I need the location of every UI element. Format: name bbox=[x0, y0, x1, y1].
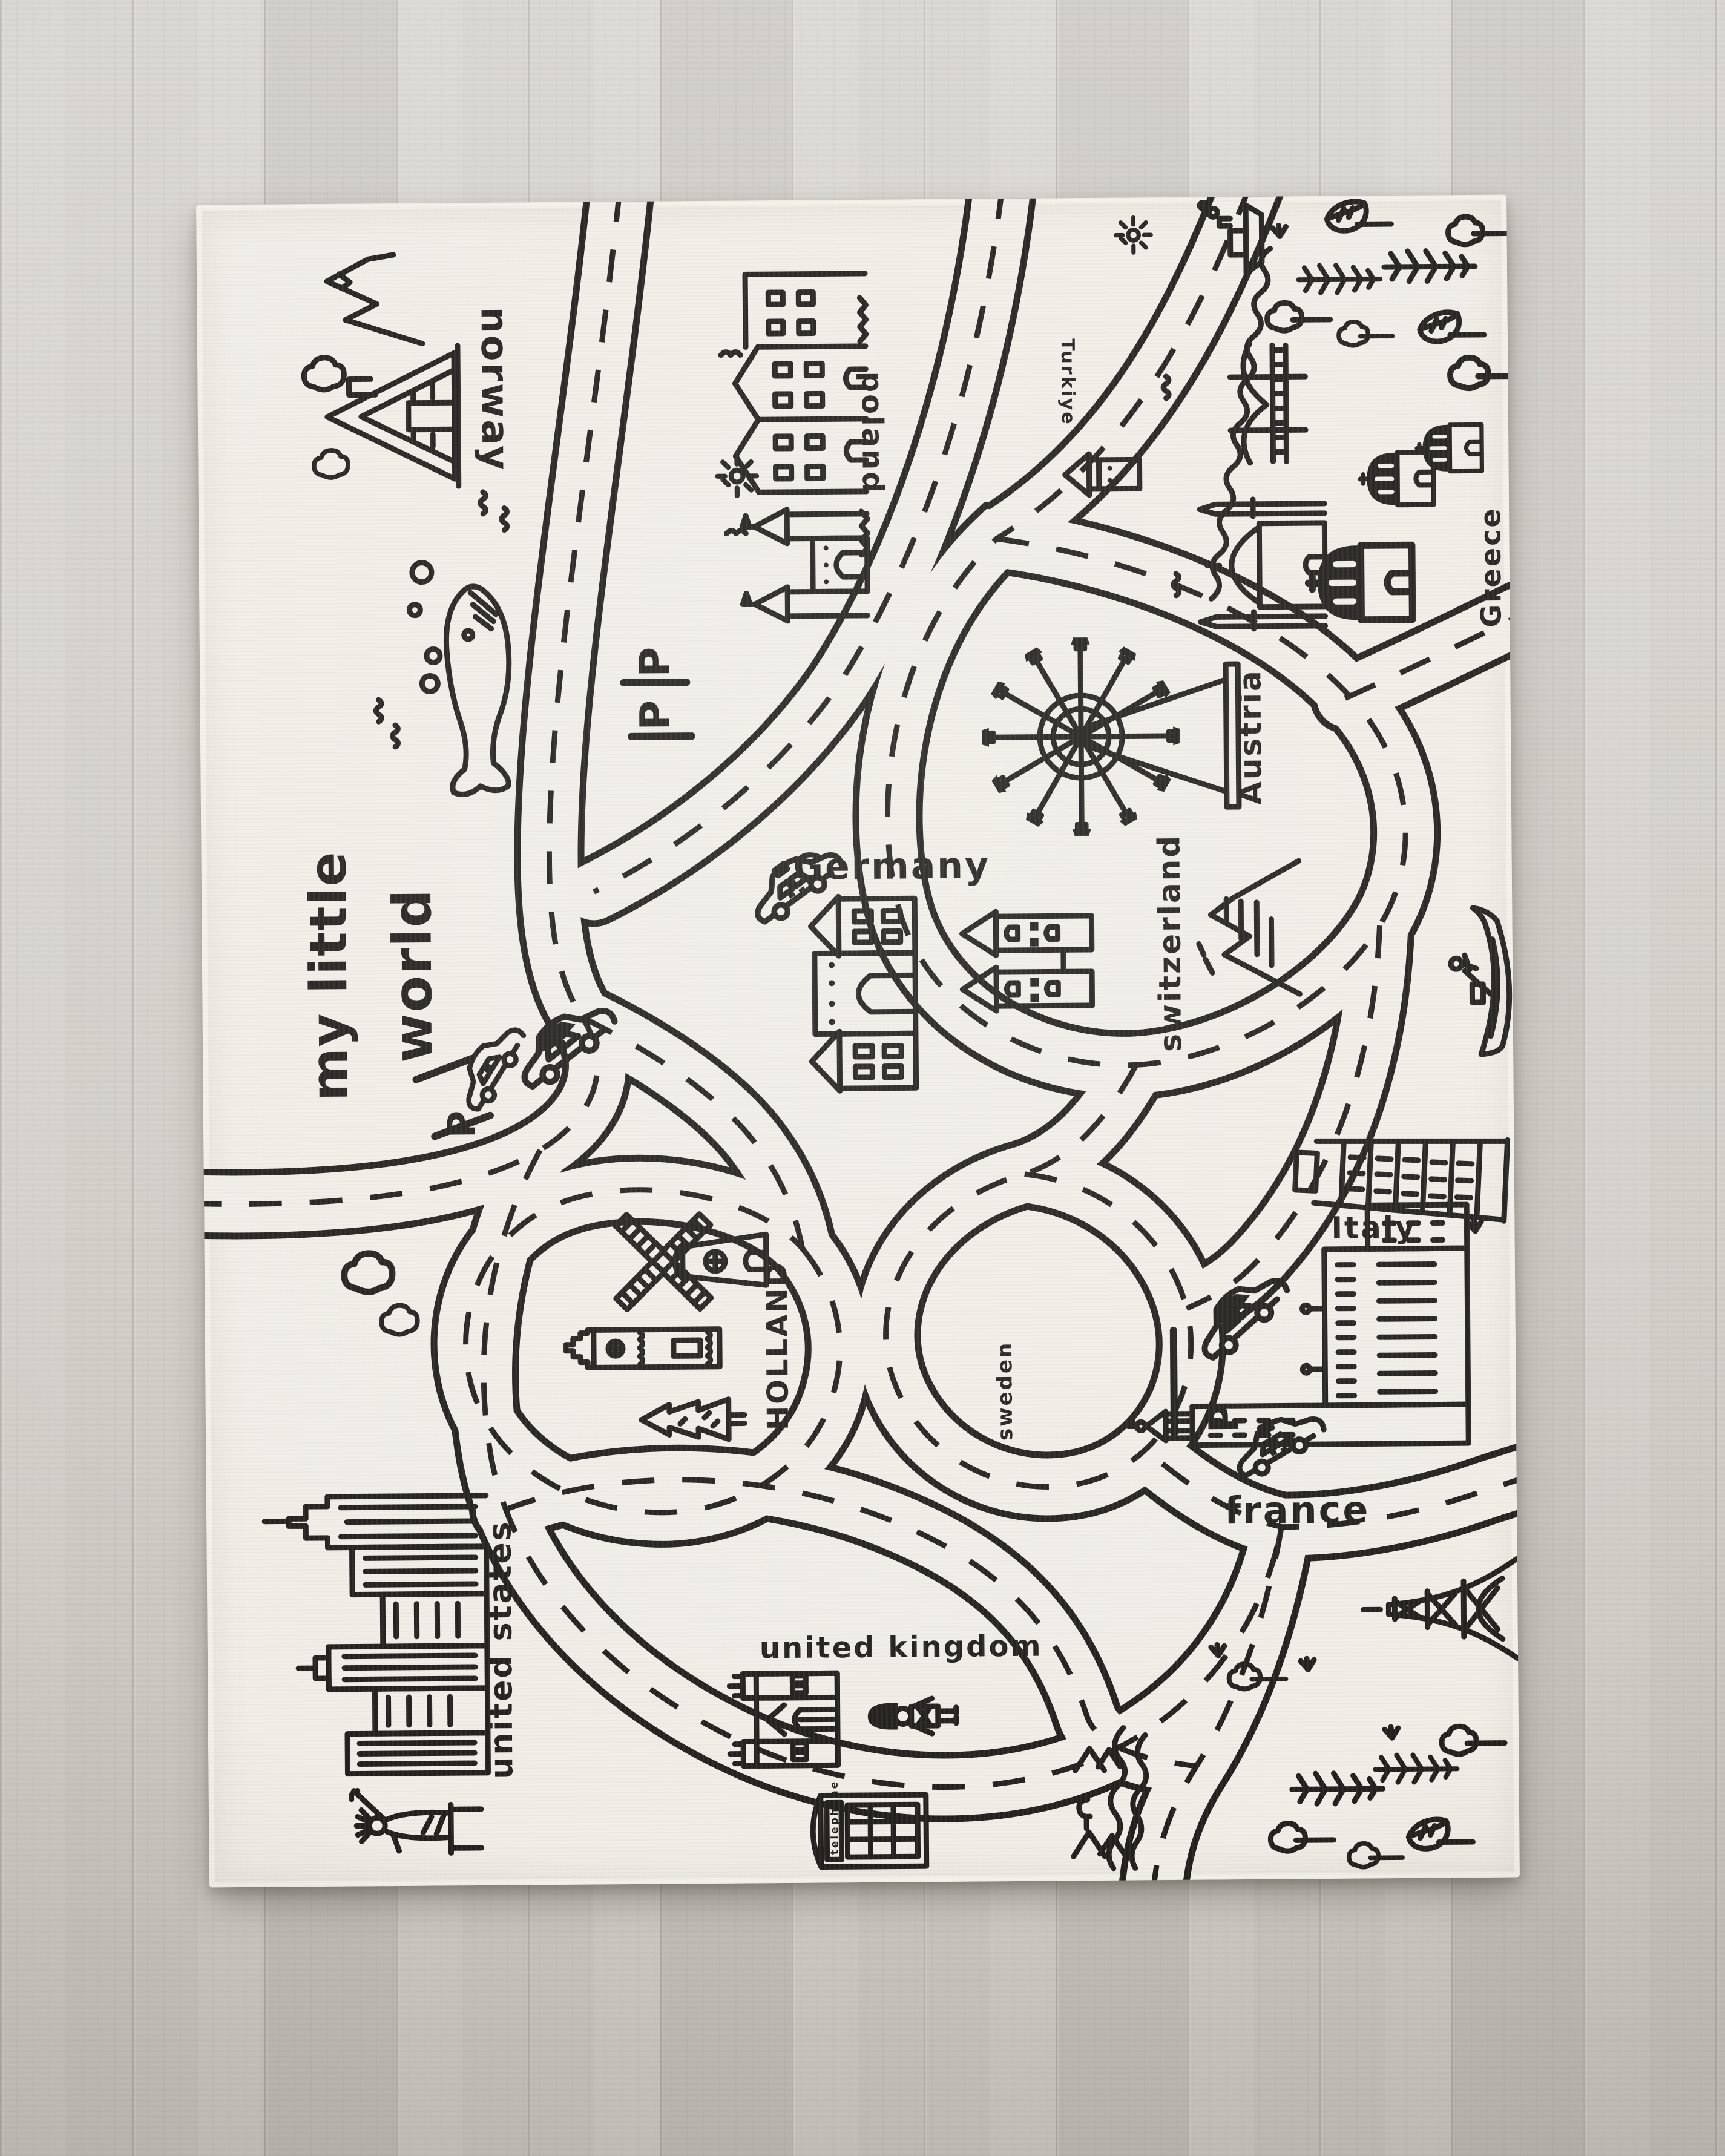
sprout-icon bbox=[1385, 1727, 1398, 1738]
cloud-tree-icon bbox=[1339, 321, 1393, 346]
zigzag-mark bbox=[861, 511, 868, 555]
bush-icon bbox=[381, 1306, 418, 1335]
leaf-tree-icon bbox=[1408, 1819, 1473, 1849]
pine-tree-icon bbox=[642, 1399, 745, 1439]
bosphorus-bridge-icon bbox=[1230, 344, 1306, 463]
sun-icon bbox=[1116, 217, 1151, 252]
rug-title-line2: world bbox=[381, 888, 444, 1063]
label-italy: Italy bbox=[1331, 1210, 1416, 1246]
pine-branch-icon bbox=[1292, 1773, 1383, 1804]
whale-icon bbox=[409, 562, 510, 795]
zigzag-mark bbox=[859, 298, 866, 341]
label-greece: Greece bbox=[1474, 507, 1508, 628]
wave-icon bbox=[480, 492, 485, 514]
eiffel-tower-icon bbox=[1363, 1559, 1517, 1659]
parked-car-icon bbox=[451, 1018, 533, 1116]
leaf-tree-icon bbox=[1420, 312, 1484, 341]
pine-branch-icon bbox=[1384, 251, 1475, 281]
gondola-icon bbox=[1450, 908, 1510, 1055]
sprout-icon bbox=[1301, 1658, 1314, 1669]
label-poland: poland bbox=[855, 372, 890, 495]
queens-guard-icon bbox=[868, 1698, 956, 1734]
canal-house-icon bbox=[566, 1329, 720, 1368]
greece-church-icon bbox=[1360, 452, 1433, 505]
label-austria: Austria bbox=[1232, 669, 1269, 805]
label-norway: norway bbox=[472, 306, 517, 472]
svg-text:P: P bbox=[1201, 1401, 1249, 1433]
poland-buildings-icon bbox=[734, 274, 867, 622]
parking-sign: P P bbox=[623, 645, 692, 737]
label-holland: HOLLAND bbox=[760, 1261, 795, 1431]
cloud-tree-icon bbox=[1442, 1726, 1505, 1755]
wave-icon bbox=[392, 725, 398, 747]
sprout-icon bbox=[1468, 1220, 1481, 1231]
cloud-tree-icon bbox=[1349, 1843, 1403, 1867]
bird-icon bbox=[721, 352, 740, 355]
bird-icon bbox=[726, 530, 746, 533]
svg-text:P: P bbox=[631, 645, 679, 677]
nyc-skyline-icon bbox=[264, 1496, 488, 1775]
rug-title-line1: my little bbox=[298, 850, 360, 1101]
statue-of-liberty-icon bbox=[351, 1790, 481, 1854]
svg-text:P: P bbox=[439, 1108, 484, 1138]
sprout-icon bbox=[1272, 225, 1286, 236]
svg-text:P: P bbox=[632, 698, 680, 730]
phone-booth-sign: telephone bbox=[829, 1780, 841, 1855]
label-turkiye: Turkiye bbox=[1057, 338, 1079, 426]
wave-icon bbox=[502, 508, 507, 530]
rug-print: norway poland bbox=[196, 195, 1520, 1888]
cloud-tree-icon bbox=[1267, 303, 1330, 331]
cloud-tree-icon bbox=[1448, 216, 1511, 245]
bush-icon bbox=[344, 1253, 393, 1292]
sun-icon bbox=[717, 456, 757, 496]
play-rug: norway poland bbox=[196, 195, 1520, 1888]
label-united-kingdom: united kingdom bbox=[760, 1629, 1043, 1666]
greece-church-icon bbox=[1417, 424, 1482, 472]
ferris-wheel-icon bbox=[981, 636, 1239, 836]
label-united-states: united states bbox=[482, 1520, 520, 1780]
label-france: france bbox=[1224, 1487, 1370, 1533]
label-sweden: sweden bbox=[993, 1341, 1017, 1441]
pine-branch-icon bbox=[1375, 1755, 1457, 1783]
pine-branch-icon bbox=[1298, 265, 1380, 293]
cloud-icon bbox=[304, 358, 344, 390]
cloud-tree-icon bbox=[1270, 1823, 1333, 1852]
norway-mountains-icon bbox=[327, 255, 422, 344]
cloud-icon bbox=[314, 450, 348, 478]
label-switzerland: switzerland bbox=[1151, 834, 1188, 1052]
leaf-tree-icon bbox=[1327, 202, 1391, 231]
wave-icon bbox=[376, 700, 381, 721]
